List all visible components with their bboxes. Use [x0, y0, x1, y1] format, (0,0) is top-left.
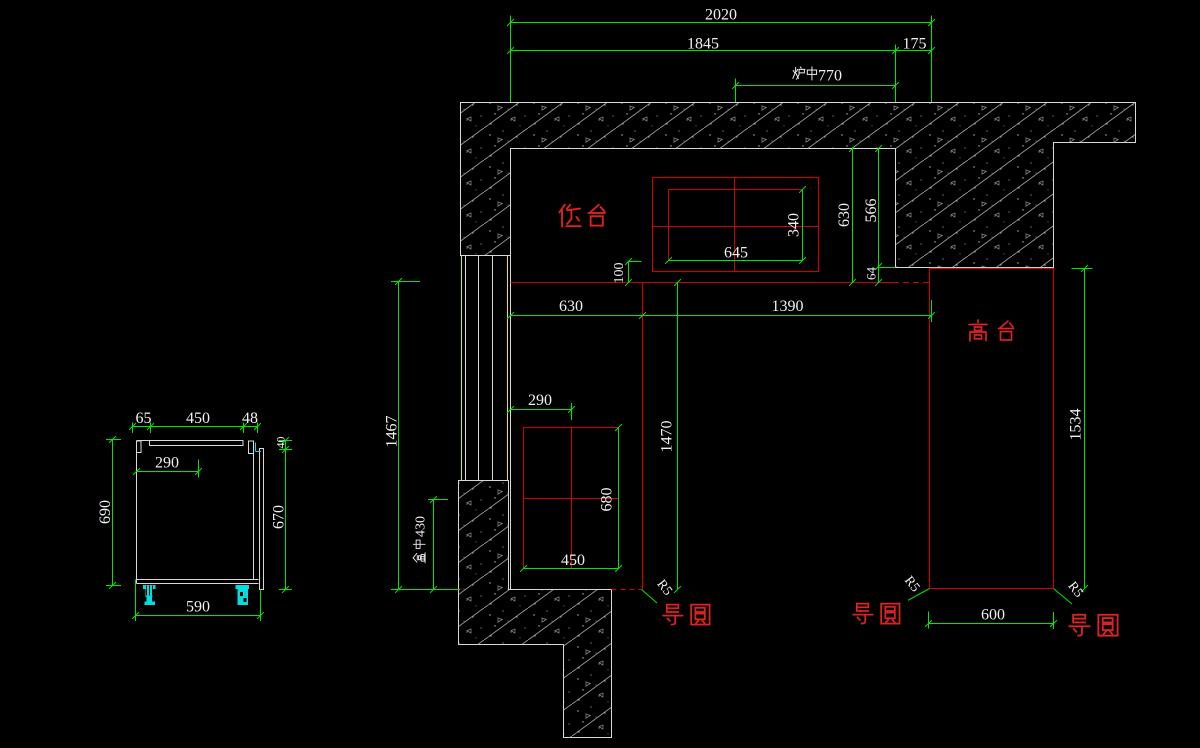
svg-text:290: 290 — [528, 392, 552, 409]
svg-text:690: 690 — [97, 500, 114, 524]
svg-text:1467: 1467 — [384, 416, 401, 448]
svg-text:340: 340 — [786, 213, 803, 237]
svg-text:48: 48 — [242, 410, 258, 427]
svg-text:430: 430 — [414, 516, 429, 537]
svg-text:670: 670 — [271, 505, 288, 529]
svg-text:770: 770 — [818, 68, 842, 85]
svg-text:630: 630 — [836, 203, 853, 227]
svg-text:1534: 1534 — [1068, 409, 1085, 441]
svg-text:64: 64 — [864, 267, 879, 281]
svg-text:450: 450 — [561, 552, 585, 569]
svg-text:566: 566 — [863, 199, 880, 223]
svg-text:40: 40 — [274, 437, 288, 449]
svg-text:1390: 1390 — [772, 298, 804, 315]
svg-text:65: 65 — [136, 410, 152, 427]
svg-text:630: 630 — [559, 298, 583, 315]
svg-text:1470: 1470 — [659, 421, 676, 453]
svg-text:2020: 2020 — [705, 7, 737, 24]
svg-text:290: 290 — [155, 455, 179, 472]
svg-text:680: 680 — [599, 488, 616, 512]
svg-text:450: 450 — [186, 410, 210, 427]
svg-text:645: 645 — [724, 245, 748, 262]
svg-text:175: 175 — [903, 36, 927, 53]
svg-text:600: 600 — [981, 607, 1005, 624]
svg-text:1845: 1845 — [687, 36, 719, 53]
svg-text:590: 590 — [186, 599, 210, 616]
svg-text:100: 100 — [612, 263, 627, 284]
